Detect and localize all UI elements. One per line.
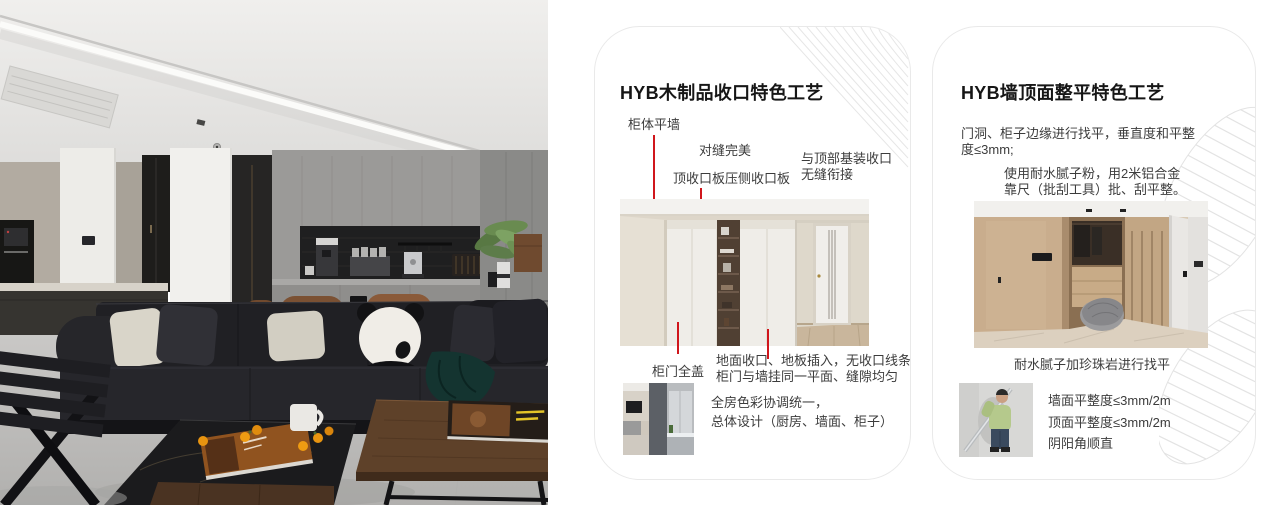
paragraph-line: 使用耐水腻子粉，用2米铝合金	[1004, 166, 1186, 182]
callout-top-joint: 与顶部基装收口 无缝衔接	[801, 151, 892, 183]
paragraph-line: 门洞、柜子边缘进行找平，垂直度和平整	[961, 126, 1195, 142]
notes-block: 地面收口、地板插入，无收口线条 柜门与墙挂同一平面、缝隙均匀	[716, 353, 911, 384]
paragraph-leveling: 门洞、柜子边缘进行找平，垂直度和平整 度≤3mm;	[961, 126, 1195, 157]
paragraph-line: 靠尺（批刮工具）批、刮平整。	[1004, 182, 1186, 198]
callout-cabinet-flush-wall: 柜体平墙	[628, 117, 680, 133]
hallway-door	[232, 155, 272, 315]
hallway-photo	[974, 201, 1208, 348]
callout-door-full-cover: 柜门全盖	[652, 364, 704, 380]
wall-switch	[82, 236, 95, 245]
note-line: 柜门与墙挂同一平面、缝隙均匀	[716, 369, 911, 385]
spec-line: 阴阳角顺直	[1048, 433, 1171, 455]
spec-list: 墙面平整度≤3mm/2m 顶面平整度≤3mm/2m 阴阳角顺直	[1048, 390, 1171, 455]
callout-perfect-seam: 对缝完美	[699, 143, 751, 159]
page: HYB木制品收口特色工艺 柜体平墙 对缝完美 顶收口板压侧收口板 与顶部基装收口…	[0, 0, 1280, 505]
summary-line: 总体设计（厨房、墙面、柜子）	[711, 413, 893, 432]
spec-line: 顶面平整度≤3mm/2m	[1048, 412, 1171, 434]
paragraph-putty: 使用耐水腻子粉，用2米铝合金 靠尺（批刮工具）批、刮平整。	[1004, 166, 1186, 197]
magazine	[447, 400, 548, 443]
living-room-illustration	[0, 0, 548, 505]
summary-line: 全房色彩协调统一，	[711, 394, 893, 413]
wardrobe-render-image	[620, 199, 869, 346]
callout-line-door-full-cover	[677, 322, 679, 354]
card-title: HYB木制品收口特色工艺	[620, 79, 824, 105]
paragraph-line: 度≤3mm;	[961, 142, 1195, 158]
interior-thumbnail-image	[623, 383, 694, 455]
mug	[290, 404, 317, 431]
spec-line: 墙面平整度≤3mm/2m	[1048, 390, 1171, 412]
summary-block: 全房色彩协调统一， 总体设计（厨房、墙面、柜子）	[711, 394, 893, 431]
craft-card-woodwork: HYB木制品收口特色工艺 柜体平墙 对缝完美 顶收口板压侧收口板 与顶部基装收口…	[594, 26, 911, 480]
card-title: HYB墙顶面整平特色工艺	[961, 79, 1165, 105]
callout-top-board: 顶收口板压侧收口板	[673, 171, 790, 187]
worker-thumbnail-image	[959, 383, 1033, 457]
image-caption: 耐水腻子加珍珠岩进行找平	[1014, 357, 1170, 373]
craft-card-wall-leveling: HYB墙顶面整平特色工艺 门洞、柜子边缘进行找平，垂直度和平整 度≤3mm; 使…	[932, 26, 1256, 480]
note-line: 地面收口、地板插入，无收口线条	[716, 353, 911, 369]
living-room-photo	[0, 0, 548, 505]
